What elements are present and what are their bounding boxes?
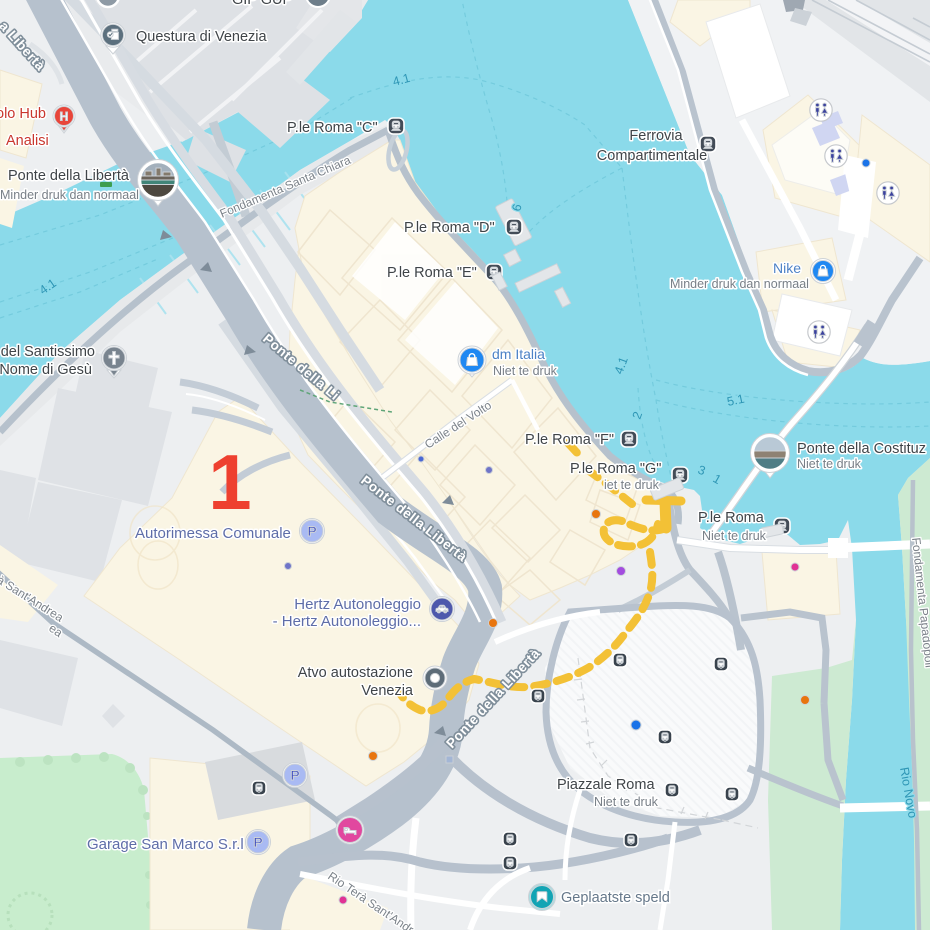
svg-text:- Hertz Autonoleggio...: - Hertz Autonoleggio... (273, 613, 421, 630)
svg-text:P.le Roma "G": P.le Roma "G" (570, 461, 661, 477)
svg-text:del Santissimo: del Santissimo (1, 344, 95, 360)
svg-text:Niet te druk: Niet te druk (493, 364, 558, 378)
svg-text:Garage San Marco S.r.l: Garage San Marco S.r.l (87, 836, 244, 853)
svg-text:Piazzale Roma: Piazzale Roma (557, 777, 655, 793)
svg-text:Ferrovia: Ferrovia (629, 128, 683, 144)
svg-text:Geplaatste speld: Geplaatste speld (561, 890, 670, 906)
svg-text:Compartimentale: Compartimentale (597, 148, 707, 164)
svg-text:Niet te druk: Niet te druk (594, 795, 659, 809)
svg-text:Ponte della Libertà: Ponte della Libertà (8, 168, 130, 184)
svg-text:Nome di Gesù: Nome di Gesù (0, 362, 92, 378)
svg-text:Minder druk dan normaal: Minder druk dan normaal (0, 188, 139, 202)
svg-text:Niet te druk: Niet te druk (702, 529, 767, 543)
svg-text:Analisi: Analisi (6, 133, 49, 149)
svg-text:olo Hub: olo Hub (0, 106, 46, 122)
svg-text:P.le Roma "F": P.le Roma "F" (525, 432, 614, 448)
svg-text:iet te druk: iet te druk (604, 478, 660, 492)
svg-text:H: H (60, 110, 69, 124)
svg-text:dm Italia: dm Italia (492, 346, 545, 362)
svg-text:Questura di Venezia: Questura di Venezia (136, 29, 268, 45)
svg-text:Minder druk dan normaal: Minder druk dan normaal (670, 277, 809, 291)
svg-text:Niet te druk: Niet te druk (797, 457, 862, 471)
svg-text:Hertz Autonoleggio: Hertz Autonoleggio (294, 596, 421, 613)
svg-text:P.le Roma "D": P.le Roma "D" (404, 220, 495, 236)
svg-text:Nike: Nike (773, 260, 801, 276)
svg-text:Ponte della Costituz: Ponte della Costituz (797, 441, 926, 457)
svg-text:GIP GUP: GIP GUP (232, 0, 292, 8)
svg-text:Venezia: Venezia (361, 683, 414, 699)
svg-text:P.le Roma "E": P.le Roma "E" (387, 265, 477, 281)
svg-text:1: 1 (208, 438, 251, 526)
svg-text:Autorimessa Comunale: Autorimessa Comunale (135, 525, 291, 542)
svg-text:P.le Roma "C": P.le Roma "C" (287, 120, 378, 136)
svg-text:Atvo autostazione: Atvo autostazione (298, 665, 413, 681)
svg-text:P.le Roma: P.le Roma (698, 510, 765, 526)
